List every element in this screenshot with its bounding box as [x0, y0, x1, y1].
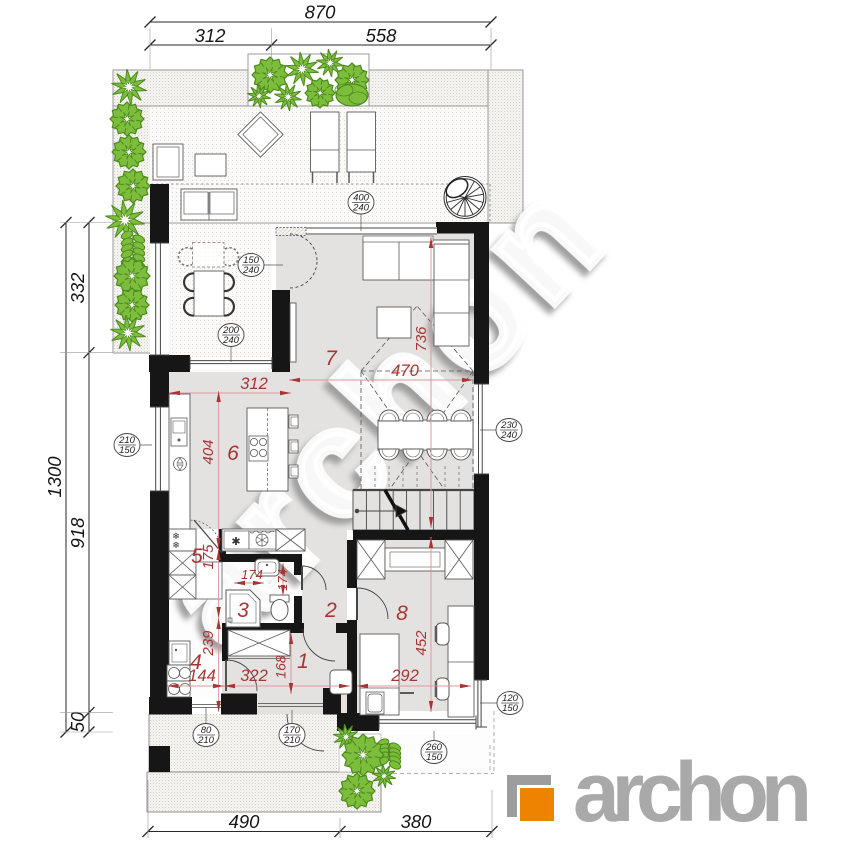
svg-text:6: 6: [227, 442, 239, 465]
svg-text:239: 239: [200, 630, 217, 657]
svg-text:50: 50: [67, 711, 88, 732]
svg-text:❄: ❄: [172, 540, 180, 550]
svg-text:240: 240: [500, 430, 518, 441]
svg-text:✱: ✱: [231, 536, 240, 548]
svg-text:1: 1: [297, 650, 309, 673]
svg-text:380: 380: [401, 811, 433, 832]
svg-text:736: 736: [413, 326, 430, 352]
svg-text:1300: 1300: [44, 456, 65, 498]
svg-text:558: 558: [366, 25, 398, 46]
svg-text:918: 918: [67, 517, 88, 549]
svg-text:8: 8: [396, 602, 408, 625]
svg-text:210: 210: [197, 735, 215, 746]
svg-text:332: 332: [67, 272, 88, 304]
svg-text:870: 870: [305, 2, 337, 23]
svg-text:240: 240: [222, 335, 240, 346]
svg-text:292: 292: [390, 667, 419, 685]
svg-text:150: 150: [119, 445, 136, 456]
svg-text:240: 240: [352, 203, 370, 214]
svg-text:4: 4: [190, 651, 202, 674]
svg-text:470: 470: [391, 362, 419, 380]
svg-text:150: 150: [502, 703, 519, 714]
svg-text:312: 312: [195, 25, 227, 46]
svg-text:490: 490: [229, 811, 261, 832]
svg-text:archon: archon: [573, 745, 808, 839]
svg-text:174: 174: [275, 569, 290, 591]
svg-text:168: 168: [273, 655, 289, 679]
svg-text:2: 2: [324, 599, 337, 622]
svg-text:452: 452: [413, 630, 430, 656]
svg-text:5: 5: [191, 545, 203, 568]
svg-text:150: 150: [426, 752, 443, 763]
svg-text:210: 210: [283, 735, 301, 746]
svg-text:404: 404: [200, 439, 217, 464]
svg-text:312: 312: [240, 375, 268, 393]
svg-text:174: 174: [241, 567, 263, 582]
svg-text:322: 322: [240, 667, 268, 685]
svg-text:3: 3: [237, 599, 249, 622]
svg-text:240: 240: [242, 265, 260, 276]
svg-text:7: 7: [325, 347, 338, 370]
